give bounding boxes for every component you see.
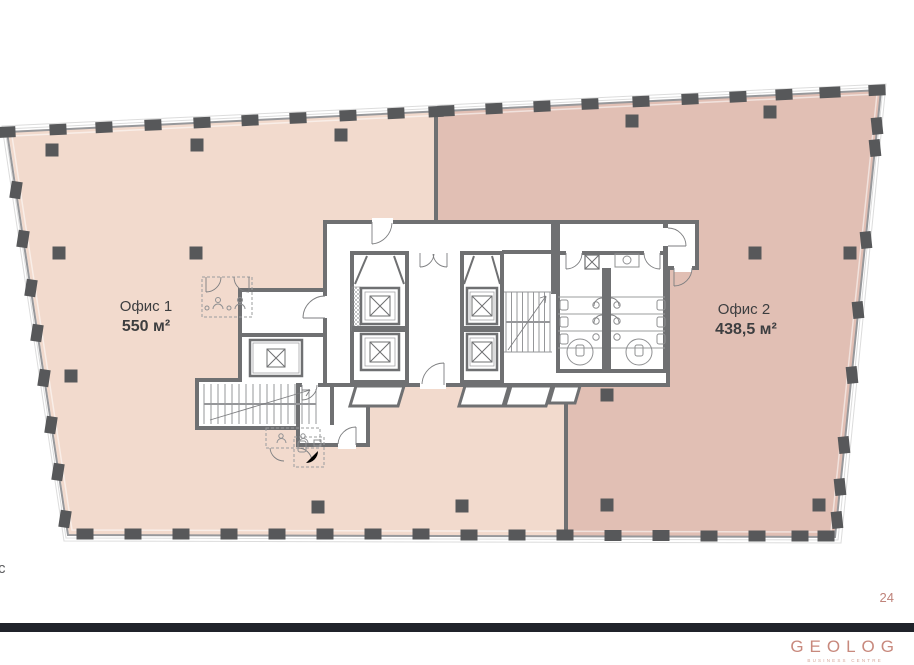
bathroom-block bbox=[558, 253, 665, 371]
office2-area: 438,5 м² bbox=[715, 321, 777, 338]
footer-divider-bar bbox=[0, 623, 914, 632]
elevator-car bbox=[361, 334, 399, 370]
office2-name: Офис 2 bbox=[718, 301, 770, 318]
brochure-page: Офис 1 550 м² Офис 2 438,5 м² с 24 GEOLO… bbox=[0, 0, 914, 665]
vestibule-partition bbox=[330, 385, 334, 425]
logo-wordmark: GEOLOG bbox=[790, 637, 900, 657]
geolog-logo: GEOLOG BUSINESS CENTRE bbox=[790, 637, 900, 663]
elevator-car bbox=[361, 288, 399, 324]
page-number: 24 bbox=[880, 590, 894, 605]
office1-name: Офис 1 bbox=[120, 298, 172, 315]
core-shafts bbox=[350, 386, 580, 406]
elevator-car bbox=[467, 288, 497, 324]
clipped-side-text: с bbox=[0, 560, 6, 577]
office1-area: 550 м² bbox=[122, 318, 170, 335]
elevator-car bbox=[467, 334, 497, 370]
floor-plan: Офис 1 550 м² Офис 2 438,5 м² bbox=[0, 0, 914, 560]
logo-subtitle: BUSINESS CENTRE bbox=[790, 658, 900, 663]
